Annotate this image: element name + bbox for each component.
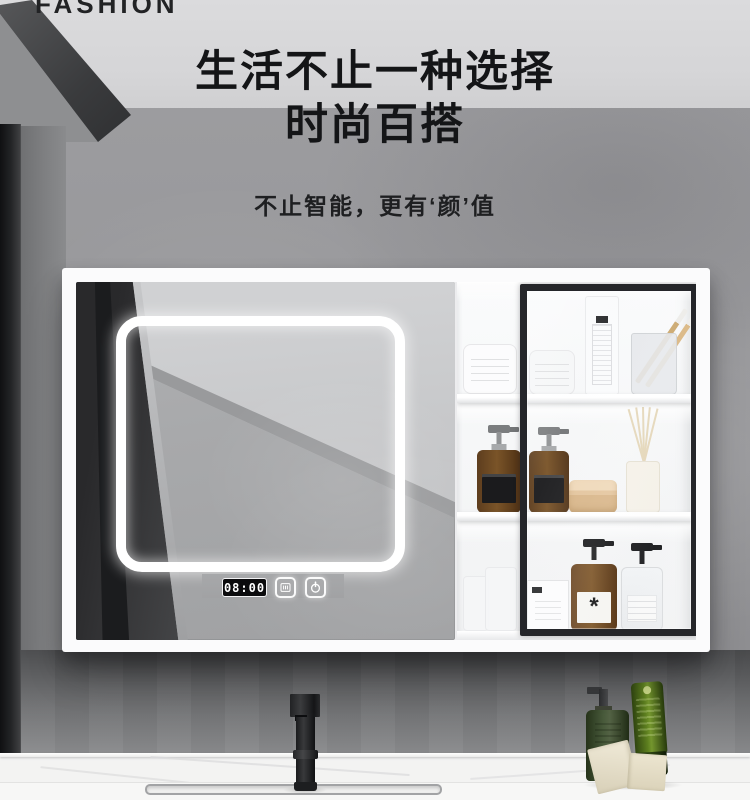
led-light-ring bbox=[116, 316, 405, 572]
power-button bbox=[305, 577, 326, 598]
faucet-collar bbox=[293, 750, 318, 759]
bottle-label bbox=[482, 474, 515, 503]
power-icon bbox=[309, 581, 322, 594]
headline-line2: 时尚百搭 bbox=[0, 102, 750, 149]
soap-dispenser bbox=[477, 422, 521, 513]
faucet-base bbox=[294, 782, 317, 791]
jar-label bbox=[471, 359, 510, 387]
tube-logo bbox=[643, 686, 652, 695]
defog-button bbox=[275, 577, 296, 598]
white-bottle bbox=[485, 567, 517, 631]
mirror-cabinet: 08:00 bbox=[62, 268, 710, 652]
headline-line1: 生活不止一种选择 bbox=[0, 49, 750, 96]
product-poster: FASHION 生活不止一种选择 时尚百搭 不止智能，更有‘颜’值 bbox=[0, 0, 750, 800]
faucet-spout bbox=[290, 694, 320, 717]
defog-icon bbox=[280, 582, 291, 593]
clock-display: 08:00 bbox=[222, 578, 267, 597]
subheadline: 不止智能，更有‘颜’值 bbox=[0, 187, 750, 221]
window-frame bbox=[0, 124, 21, 800]
smart-mirror: 08:00 bbox=[76, 282, 455, 640]
tube-body bbox=[631, 681, 668, 755]
faucet bbox=[287, 694, 323, 791]
cream-box bbox=[627, 753, 667, 792]
cosmetic-jar bbox=[463, 344, 517, 394]
tube-label bbox=[636, 697, 663, 739]
brand-watermark: FASHION bbox=[35, 0, 179, 17]
amber-bottle-body bbox=[477, 450, 521, 513]
marble-vein bbox=[150, 756, 410, 776]
glass-door bbox=[520, 284, 696, 636]
storage-shelves: * bbox=[455, 282, 696, 640]
